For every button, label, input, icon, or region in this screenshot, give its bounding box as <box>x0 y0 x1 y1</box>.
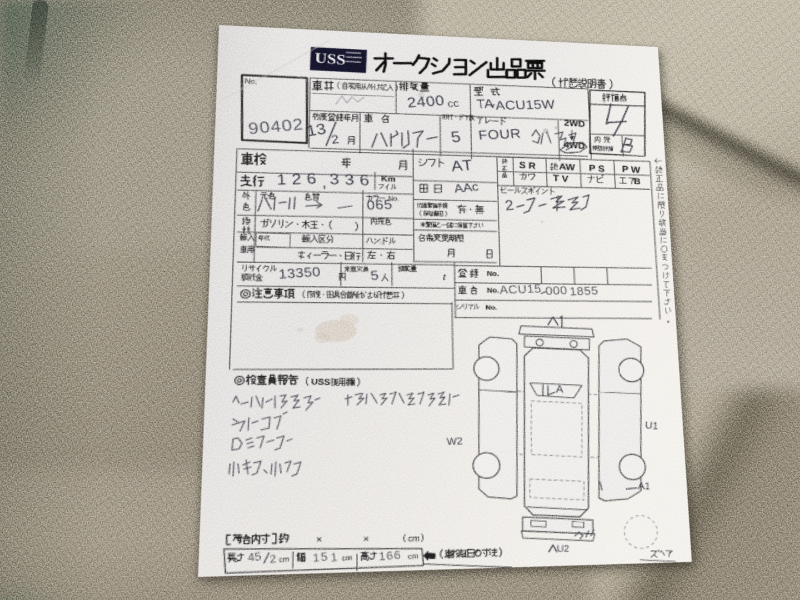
svg-text:×: × <box>363 533 369 544</box>
svg-text:No.: No. <box>487 286 499 295</box>
svg-text:USS: USS <box>314 49 346 68</box>
svg-text:U1: U1 <box>645 420 659 432</box>
svg-text:cm: cm <box>279 556 290 564</box>
svg-text:Km: Km <box>381 174 396 184</box>
svg-text:B: B <box>634 177 641 187</box>
svg-text:U2: U2 <box>557 543 569 554</box>
svg-text:5: 5 <box>320 551 328 564</box>
svg-text:5: 5 <box>370 268 380 283</box>
svg-text:AW: AW <box>559 162 576 173</box>
svg-text:FOUR: FOUR <box>478 127 522 143</box>
svg-text:): ) <box>421 532 424 543</box>
svg-text:TA: TA <box>476 97 495 112</box>
svg-text:000: 000 <box>545 284 568 298</box>
svg-text:1: 1 <box>276 172 287 188</box>
svg-text:065: 065 <box>366 197 393 212</box>
svg-text:2: 2 <box>269 553 276 566</box>
svg-text:×: × <box>316 534 322 545</box>
svg-text:A1: A1 <box>638 481 650 493</box>
svg-text:3: 3 <box>329 172 340 188</box>
svg-text:ACU15W: ACU15W <box>495 98 556 113</box>
svg-text:,: , <box>322 175 327 191</box>
svg-text:AAc: AAc <box>453 179 480 195</box>
svg-text:3: 3 <box>344 171 355 188</box>
svg-text:USS: USS <box>311 376 331 387</box>
svg-text:cm: cm <box>342 554 353 562</box>
svg-text:T V: T V <box>553 174 569 185</box>
svg-text:6: 6 <box>359 172 370 189</box>
svg-text:AT: AT <box>450 157 474 175</box>
svg-text:2WD: 2WD <box>564 118 585 129</box>
svg-text:1: 1 <box>330 552 338 565</box>
svg-text:P S: P S <box>589 164 605 175</box>
svg-text:2400: 2400 <box>406 93 446 111</box>
svg-text:2: 2 <box>291 172 302 188</box>
svg-text:1: 1 <box>312 552 320 565</box>
svg-text:13: 13 <box>305 121 328 140</box>
svg-text:45: 45 <box>247 551 262 565</box>
svg-text:No.: No. <box>487 269 499 278</box>
svg-text:(: ( <box>403 532 406 543</box>
svg-text:cc: cc <box>447 98 460 109</box>
svg-text:A: A <box>556 384 564 396</box>
svg-text:S R: S R <box>519 161 536 172</box>
svg-text:166: 166 <box>379 550 402 564</box>
svg-text:No.: No. <box>486 305 498 312</box>
svg-text:13350: 13350 <box>278 264 321 281</box>
svg-text:cm: cm <box>408 553 419 561</box>
svg-text:W2: W2 <box>446 436 463 448</box>
svg-text:cm: cm <box>408 534 420 544</box>
svg-text:ACU15: ACU15 <box>499 282 542 297</box>
svg-text:1855: 1855 <box>569 284 599 298</box>
svg-text:6: 6 <box>306 171 317 187</box>
svg-text:P W: P W <box>622 165 641 176</box>
